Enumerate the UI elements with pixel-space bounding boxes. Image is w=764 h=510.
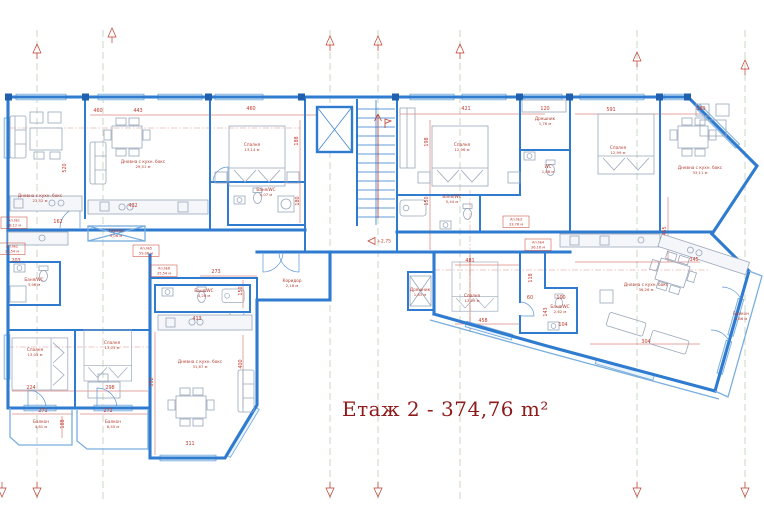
dimension-label: 520 <box>62 163 68 172</box>
dimension-label: 345 <box>689 257 698 263</box>
apartment-number: Ап.№2 <box>6 245 18 249</box>
room-area-label: 1,88 м <box>542 169 555 174</box>
level-mark-value: +2,75 <box>377 239 391 245</box>
room-area-label: 13,09 м <box>465 298 480 303</box>
room-area-label: 13,01 м <box>105 345 120 350</box>
dimension-label: 298 <box>105 385 114 391</box>
right-balcony-rail <box>715 271 762 397</box>
room-area-label: 29,51 м <box>136 164 151 169</box>
dimension-label: 180 <box>295 196 301 205</box>
dimension-label: 481 <box>465 258 474 264</box>
apartment-number: Ап.№4 <box>532 241 545 245</box>
room-area-label: 3,96 м <box>28 282 41 287</box>
room-area-label: 4,61 м <box>35 424 48 429</box>
dimension-label: 224 <box>26 385 35 391</box>
apartment-area: 38,12 м <box>7 224 21 228</box>
room-area-label: 4,07 м <box>260 192 273 197</box>
dimension-label: 162 <box>53 219 62 225</box>
axis-marker-bottom <box>0 482 6 497</box>
level-marks-layer: +2,75 <box>368 238 391 245</box>
stairs <box>357 100 395 225</box>
dimension-label: 591 <box>606 107 615 113</box>
dimension-label: 311 <box>185 441 194 447</box>
balcony-left-2 <box>77 410 148 449</box>
apartment-number: Ап.№6 <box>158 267 171 271</box>
apartment-number: Ап.№3 <box>510 218 522 222</box>
dimension-label: 460 <box>93 108 102 114</box>
dimension-label: 150 <box>424 196 430 205</box>
floorplan-drawing: Ап.№138,12 мАп.№230,54 мАп.№559,06 мАп.№… <box>0 0 764 510</box>
axis-marker-top <box>108 28 116 43</box>
room-area-label: 4,86 м <box>735 316 748 321</box>
floor-title: Етаж 2 - 374,76 m² <box>342 397 549 421</box>
dimension-label: 304 <box>641 339 650 345</box>
dimension-label: 120 <box>540 106 549 112</box>
dimension-label: 188 <box>60 419 66 428</box>
dimension-label: 60 <box>527 295 533 301</box>
dimension-label: 273 <box>211 269 220 275</box>
dimension-text-layer: 4604434604211205911895201881801981504554… <box>11 106 705 447</box>
room-area-label: 13,14 м <box>245 147 260 152</box>
apartment-area: 30,54 м <box>5 250 19 254</box>
apartment-area: 59,06 м <box>139 252 153 256</box>
room-area-label: 6,45 м <box>107 424 120 429</box>
room-area-label: 4,28 м <box>198 293 211 298</box>
dimension-label: 400 <box>238 359 244 368</box>
dimension-label: 198 <box>424 137 430 146</box>
dimension-label: 443 <box>133 108 142 114</box>
dimension-label: 118 <box>528 273 534 282</box>
room-area-label: 12,96 м <box>455 147 470 152</box>
room-area-label: 2,62 м <box>554 309 567 314</box>
apartment-number: Ап.№5 <box>140 247 152 251</box>
dimension-label: 455 <box>662 226 668 235</box>
room-area-label: 1,83 м <box>414 292 427 297</box>
dimension-label: 458 <box>478 318 487 324</box>
room-area-label: 33,11 м <box>693 170 708 175</box>
dimension-label: 432 <box>128 203 137 209</box>
room-area-label: 12,99 м <box>611 150 626 155</box>
apartment-area: 33,76 м <box>509 223 523 227</box>
dimension-label: 188 <box>294 136 300 145</box>
floorplan-canvas: Ап.№138,12 мАп.№230,54 мАп.№559,06 мАп.№… <box>0 0 764 510</box>
dimension-label: 104 <box>558 322 567 328</box>
apartment-number: Ап.№1 <box>8 219 20 223</box>
stair-direction-arrow <box>375 114 382 218</box>
dimension-label: 143 <box>543 307 549 316</box>
room-area-label: 31,67 м <box>193 364 208 369</box>
dimension-label: 203 <box>11 258 20 264</box>
dimension-label: 189 <box>696 106 705 112</box>
room-area-label: 23,52 м <box>33 198 48 203</box>
dimension-label: 460 <box>246 106 255 112</box>
dimension-label: 592 <box>149 377 155 386</box>
dimension-label: 150 <box>238 286 244 295</box>
apartment-area: 36,16 м <box>531 246 545 250</box>
room-area-label: 1,76 м <box>539 121 552 126</box>
dimension-label: 100 <box>556 295 565 301</box>
level-mark-icon <box>368 238 375 245</box>
terrace-rail <box>430 320 719 399</box>
dimension-label: 421 <box>461 106 470 112</box>
room-area-label: 5,06 м <box>110 233 123 238</box>
room-area-label: 5,44 м <box>446 199 459 204</box>
room-area-label: 13,05 м <box>28 352 43 357</box>
apartment-area: 35,54 м <box>157 272 171 276</box>
room-area-label: 2,18 м <box>286 283 299 288</box>
dimension-label: 272 <box>103 408 112 414</box>
dimension-label: 271 <box>38 408 47 414</box>
dimension-label: 413 <box>192 316 201 322</box>
room-area-label: 36,26 м <box>639 287 654 292</box>
